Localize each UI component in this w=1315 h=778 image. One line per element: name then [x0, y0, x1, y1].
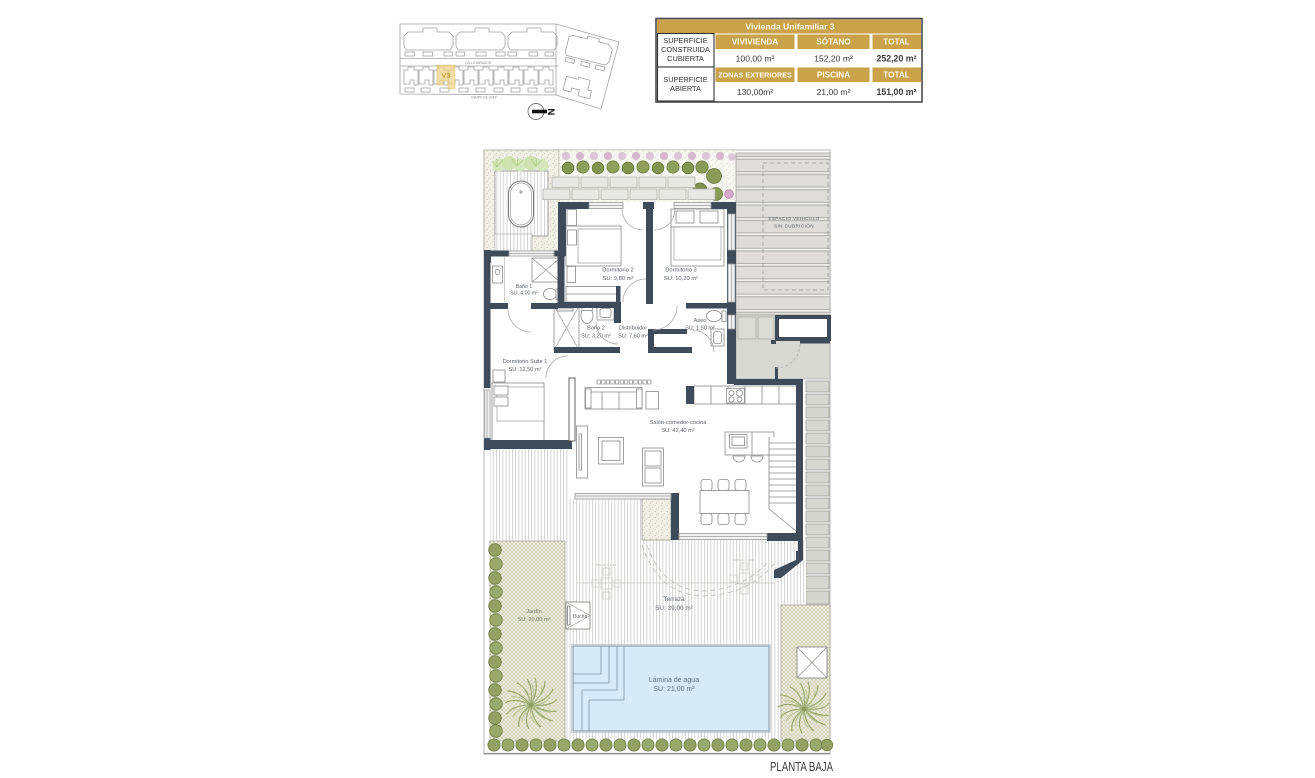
svg-text:V3: V3 [441, 71, 450, 80]
svg-text:VIVIVIENDA: VIVIVIENDA [732, 38, 778, 47]
svg-text:PISCINA: PISCINA [817, 71, 850, 80]
svg-text:ESPACIO VEHICULO: ESPACIO VEHICULO [768, 216, 819, 221]
svg-text:SÓTANO: SÓTANO [816, 36, 851, 47]
svg-text:Distribuidor: Distribuidor [619, 326, 647, 332]
svg-text:CUBIERTA: CUBIERTA [667, 54, 704, 63]
svg-text:Salón-comedor-cocina: Salón-comedor-cocina [650, 420, 708, 426]
svg-text:252,20 m²: 252,20 m² [876, 54, 916, 64]
svg-text:Ducha: Ducha [573, 614, 588, 620]
svg-text:Dormitorio 3: Dormitorio 3 [665, 268, 697, 274]
svg-text:SUPERFICIE: SUPERFICIE [663, 36, 707, 45]
svg-text:152,20 m²: 152,20 m² [814, 54, 853, 64]
svg-text:TOTAL: TOTAL [883, 38, 910, 47]
svg-text:Aseo: Aseo [694, 318, 707, 324]
svg-text:130,00m²: 130,00m² [737, 87, 773, 97]
svg-text:SU: 4,00 m²: SU: 4,00 m² [510, 291, 538, 297]
svg-text:SU: 10,20 m²: SU: 10,20 m² [664, 276, 698, 282]
svg-text:PLANTA BAJA: PLANTA BAJA [770, 760, 834, 774]
svg-text:SU: 3,20 m²: SU: 3,20 m² [581, 334, 611, 340]
svg-text:SU: 12,50 m²: SU: 12,50 m² [509, 367, 542, 373]
svg-text:Terraza: Terraza [663, 596, 685, 603]
svg-text:SIN CUBRICIÓN: SIN CUBRICIÓN [774, 223, 814, 229]
svg-text:SU: 7,60 m²: SU: 7,60 m² [618, 334, 648, 340]
svg-text:Lámina de agua: Lámina de agua [649, 677, 699, 684]
svg-text:SU: 21,00 m²: SU: 21,00 m² [653, 686, 695, 693]
svg-text:N: N [545, 108, 556, 115]
svg-text:CAMPO DE GOLF: CAMPO DE GOLF [471, 96, 498, 100]
svg-text:SU: 39,00 m²: SU: 39,00 m² [655, 605, 693, 612]
svg-text:SU: 20,00 m²: SU: 20,00 m² [518, 617, 551, 623]
svg-text:CONSTRUIDA: CONSTRUIDA [661, 45, 710, 54]
svg-text:Baño 1: Baño 1 [516, 284, 533, 290]
svg-text:SUPERFICIE: SUPERFICIE [663, 75, 707, 84]
svg-text:Jardín: Jardín [526, 609, 542, 615]
svg-text:Mesa 4 pax: Mesa 4 pax [734, 557, 755, 562]
svg-text:SU: 42,40 m²: SU: 42,40 m² [661, 428, 695, 434]
svg-text:Vivienda Unifamiliar 3: Vivienda Unifamiliar 3 [745, 22, 834, 32]
svg-text:ZONAS EXTERIORES: ZONAS EXTERIORES [718, 71, 792, 80]
svg-text:151,00 m²: 151,00 m² [876, 87, 916, 97]
svg-text:SU: 9,80 m²: SU: 9,80 m² [603, 276, 634, 282]
svg-text:Dormitorio 2: Dormitorio 2 [602, 268, 634, 274]
svg-text:Dormitorio Suite 1: Dormitorio Suite 1 [503, 359, 548, 365]
svg-text:CALLE MIRADOR: CALLE MIRADOR [465, 61, 492, 65]
svg-text:SU: 1,50 m²: SU: 1,50 m² [685, 326, 715, 332]
svg-text:21,00 m²: 21,00 m² [817, 87, 851, 97]
svg-text:Mesa 4 pax: Mesa 4 pax [596, 562, 617, 567]
svg-text:TOTAL: TOTAL [883, 71, 910, 80]
svg-text:ABIERTA: ABIERTA [670, 84, 701, 93]
svg-text:100,00 m²: 100,00 m² [736, 54, 775, 64]
